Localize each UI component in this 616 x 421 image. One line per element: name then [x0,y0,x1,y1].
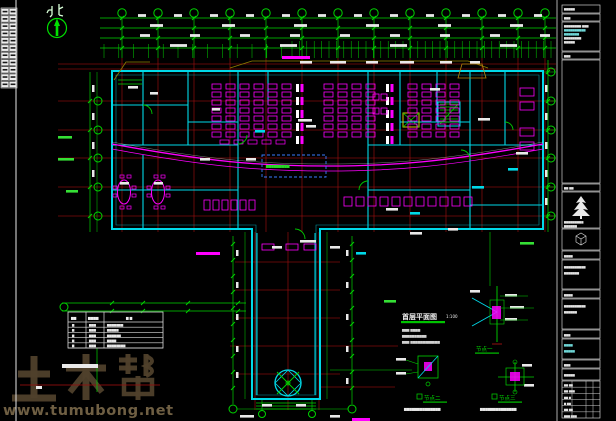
svg-text:▆▆▆▆▆: ▆▆▆▆▆ [563,373,576,377]
svg-text:▆▆▆: ▆▆▆ [563,16,571,20]
detail-2-label: 节点二 [424,394,441,402]
detail-3-label: 节点三 [499,394,516,402]
svg-text:▆▆▆: ▆▆▆ [88,344,97,348]
left-revision-strip [1,8,17,88]
plan-scale: 1:100 [446,314,458,319]
cad-canvas: 土木帮 www.tumubong.net [0,0,616,421]
building-walls [112,71,543,409]
plan-title-underline [401,321,445,323]
svg-text:▆▆ ▆▆: ▆▆ ▆▆ [563,409,574,412]
svg-text:▆▆▆: ▆▆▆ [563,363,571,367]
title-block: ▆▆▆▆▆▆▆▆▆▆▆▆▆▆▆▆ ▆▆▆▆▆▆▆▆▆▆▆▆▆▆▆▆▆▆▆▆▆▆▆… [562,5,600,418]
plan-title: 首层平面图 [402,312,437,321]
svg-text:▆▆▆: ▆▆▆ [88,333,97,337]
svg-text:▆▆▆▆: ▆▆▆▆ [563,254,573,258]
svg-text:▆▆▆▆▆: ▆▆▆▆▆ [563,7,576,11]
svg-text:▆ ▆: ▆ ▆ [125,316,133,320]
cad-drawing-viewport: 土木帮 www.tumubong.net [0,0,616,421]
svg-text:▆: ▆ [71,323,75,327]
svg-text:▆▆▆ ▆▆▆: ▆▆▆ ▆▆▆ [563,415,578,418]
svg-text:▆▆▆▆: ▆▆▆▆ [87,316,99,320]
svg-text:▆▆▆▆: ▆▆▆▆ [563,343,573,347]
svg-text:▆: ▆ [71,328,75,332]
legend-table: ▆▆▆▆▆▆▆ ▆▆▆▆▆▆▆▆▆▆▆▆▆▆▆▆▆▆▆▆▆▆▆▆▆▆▆▆▆▆▆▆… [68,312,163,348]
svg-text:▆▆: ▆▆ [70,316,77,320]
plan-note-3: ▆▆▆ ▆▆▆▆▆▆▆▆▆▆▆▆ [401,340,440,344]
svg-text:▆▆▆▆▆: ▆▆▆▆▆ [563,40,576,44]
svg-text:▆▆▆▆▆▆▆: ▆▆▆▆▆▆▆ [563,271,580,275]
svg-text:▆: ▆ [71,344,75,348]
svg-text:▆ ▆▆: ▆ ▆▆ [563,403,572,406]
svg-text:▆▆▆▆: ▆▆▆▆ [563,293,573,297]
svg-text:▆▆▆▆▆: ▆▆▆▆▆ [563,349,576,353]
detail-3-caption: ▆▆▆▆▆▆▆▆▆▆▆▆▆▆ [479,407,517,411]
svg-text:▆▆▆: ▆▆▆ [88,339,97,343]
overhang-note: ▆▆▆▆▆▆▆▆▆ [265,164,290,168]
svg-text:▆▆▆: ▆▆▆ [88,328,97,332]
svg-text:▆▆▆▆▆▆: ▆▆▆▆▆▆ [563,310,578,314]
svg-text:▆▆▆▆: ▆▆▆▆ [106,339,117,343]
svg-text:▆▆▆: ▆▆▆ [563,333,571,337]
watermark-brand-glyphs [12,354,152,400]
svg-text:▆▆▆▆▆▆▆▆: ▆▆▆▆▆▆▆▆ [106,344,126,348]
plan-note-1: ▆▆▆ ▆▆▆▆ [401,328,421,332]
svg-text:▆▆▆▆▆▆: ▆▆▆▆▆▆ [106,333,122,337]
svg-text:▆: ▆ [71,339,75,343]
detail-1-label: 节点一 [476,345,493,353]
north-compass: 北 [47,4,67,38]
svg-text:▆: ▆ [71,333,75,337]
svg-text:▆▆▆▆▆▆▆▆▆▆: ▆▆▆▆▆▆▆▆▆▆ [563,265,586,269]
plan-note-2: ▆▆▆▆▆▆▆▆▆▆ [401,334,427,338]
svg-text:▆▆ ▆▆▆: ▆▆ ▆▆▆ [563,390,576,393]
svg-text:▆▆▆: ▆▆▆ [563,54,571,58]
axis-grid-red [20,58,556,410]
svg-text:▆▆ ▆▆: ▆▆ ▆▆ [563,186,574,190]
svg-text:▆▆▆▆▆▆▆: ▆▆▆▆▆▆▆ [106,323,124,327]
svg-text:▆▆▆▆▆▆▆▆▆▆: ▆▆▆▆▆▆▆▆▆▆ [563,304,586,308]
plan-title-block: 首层平面图 1:100 ▆▆▆ ▆▆▆▆ ▆▆▆▆▆▆▆▆▆▆ ▆▆▆ ▆▆▆▆… [401,312,458,344]
svg-text:▆▆ ▆▆: ▆▆ ▆▆ [563,384,574,387]
north-arrow-icon [54,19,60,27]
curved-wall-band [112,142,543,171]
detail-2-caption: ▆▆▆▆▆▆▆▆▆▆▆▆▆▆ [403,407,441,411]
svg-text:▆▆ ▆: ▆▆ ▆ [563,396,572,399]
door-arcs [143,105,513,239]
watermark: 土木帮 www.tumubong.net [3,354,174,419]
north-label-glyph [47,4,63,17]
svg-text:▆▆▆: ▆▆▆ [88,323,97,327]
svg-text:▆▆▆▆▆▆: ▆▆▆▆▆▆ [563,224,578,228]
svg-text:▆▆▆▆▆: ▆▆▆▆▆ [106,328,119,332]
stair-and-elevator [403,102,460,127]
watermark-url: www.tumubong.net [3,403,174,419]
